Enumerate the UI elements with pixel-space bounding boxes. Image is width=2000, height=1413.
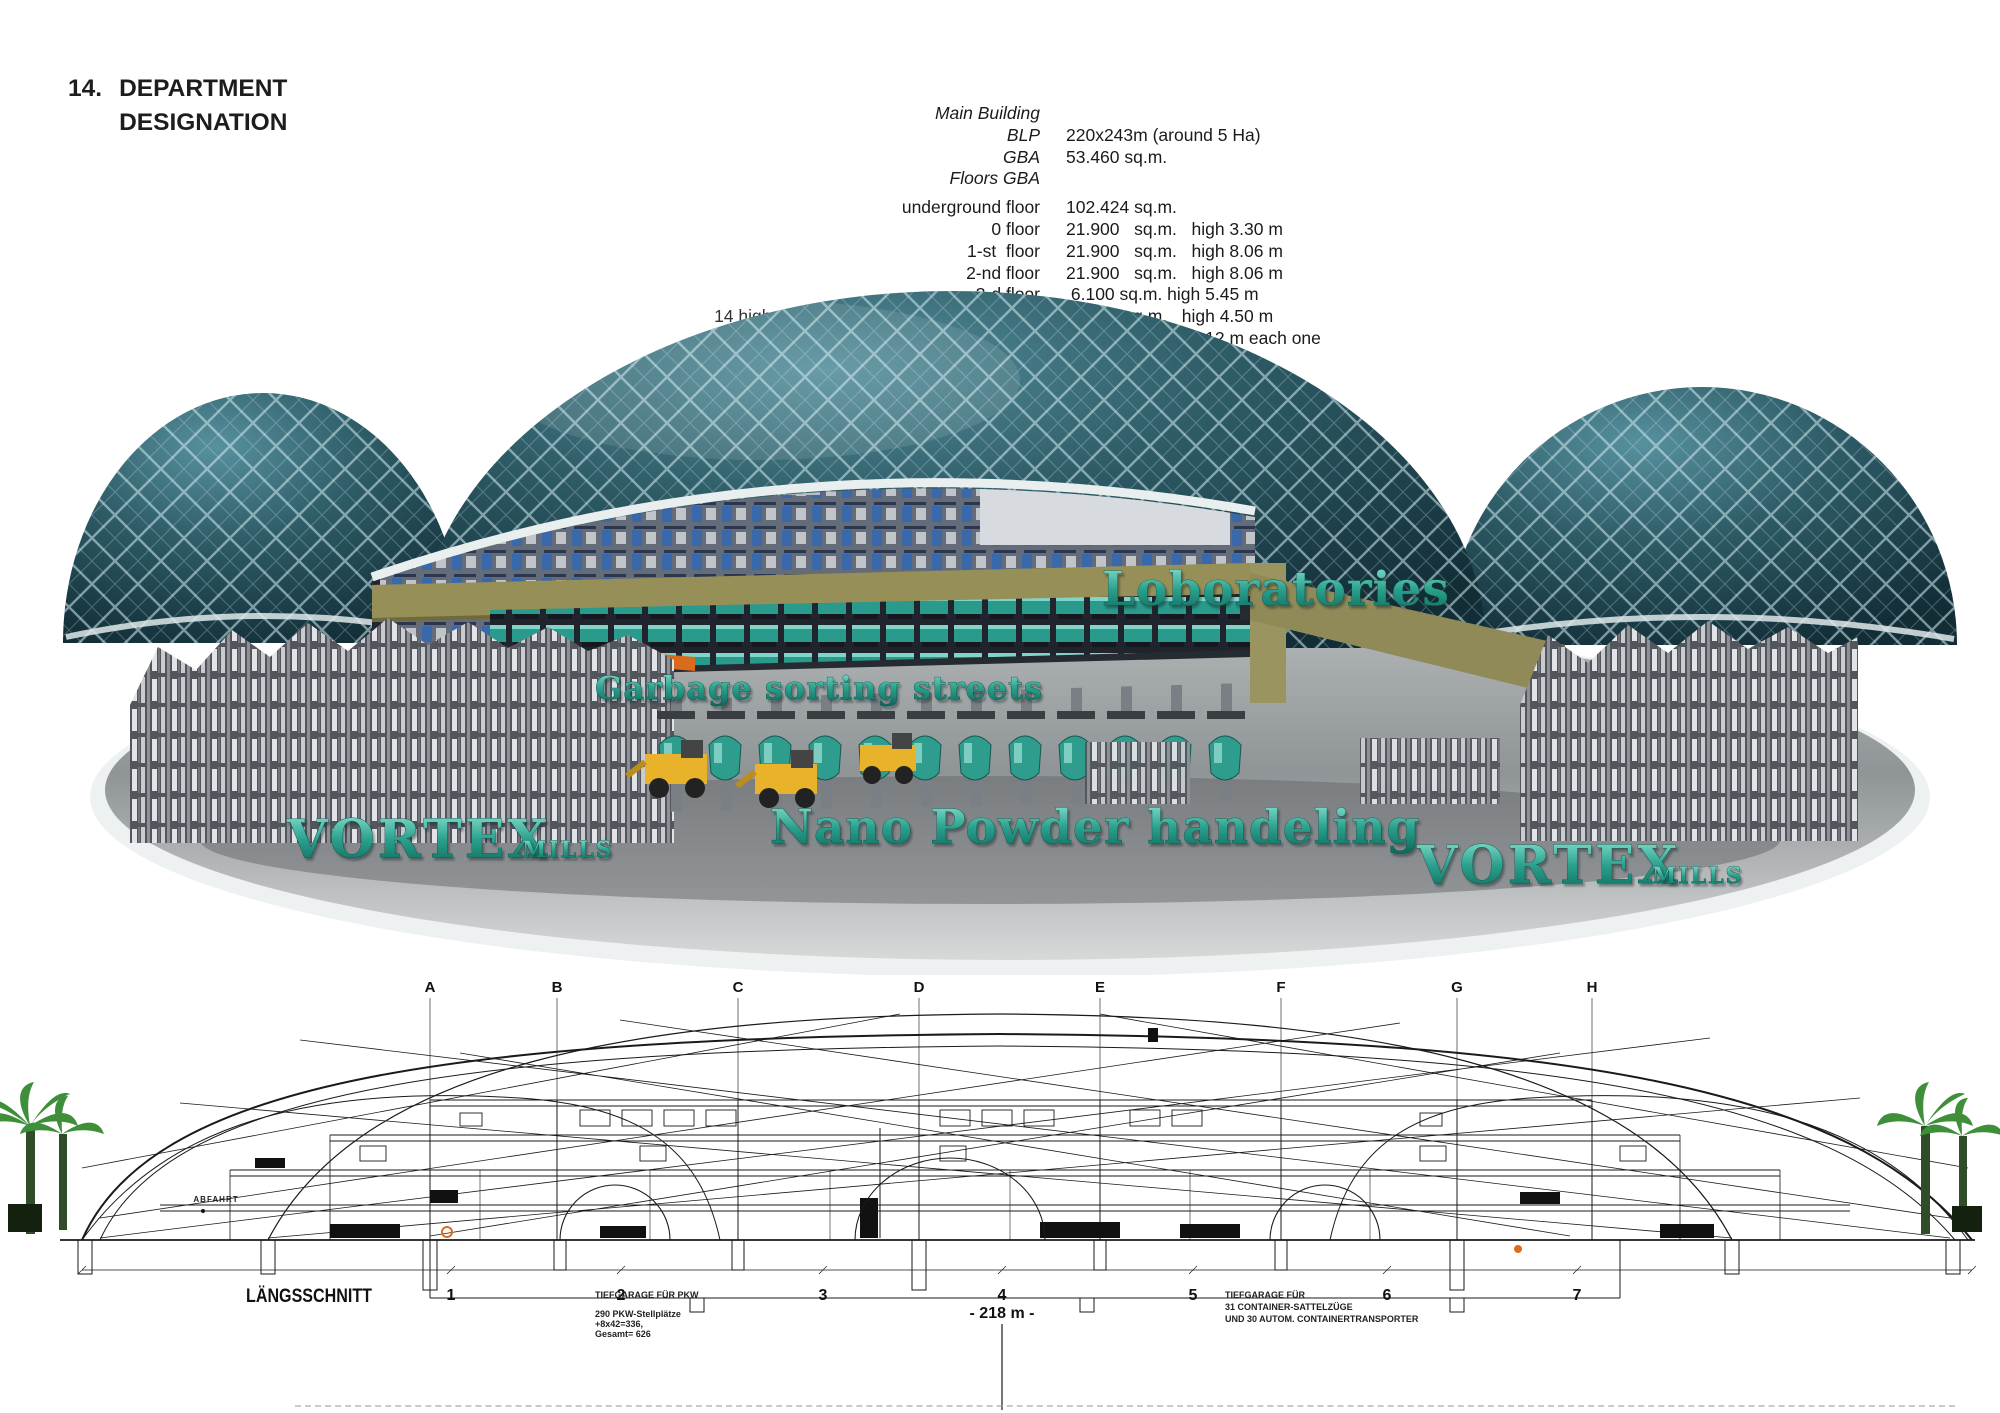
note-line: 31 CONTAINER-SATTELZÜGE	[1225, 1302, 1353, 1312]
page-title: DEPARTMENT DESIGNATION	[119, 72, 287, 140]
grid-number: 3	[819, 1287, 828, 1304]
note-line: TIEFGARAGE FÜR PKW	[595, 1290, 699, 1300]
grid-letter: H	[1587, 979, 1598, 996]
palm-trees-left	[0, 1082, 104, 1234]
grid-number: 1	[447, 1287, 456, 1304]
abfahrt-dot	[201, 1209, 205, 1213]
label-laboratories: Loboratories	[1102, 562, 1450, 617]
note-line: Gesamt= 626	[595, 1329, 651, 1339]
section-title: LÄNGSSCHNITT	[246, 1286, 372, 1307]
abfahrt-label: ABFAHRT	[193, 1195, 238, 1204]
grid-number: 4	[998, 1287, 1007, 1304]
dimension-line	[78, 1266, 1976, 1274]
orange-marker-dot	[1514, 1245, 1522, 1253]
grid-letter: C	[733, 979, 744, 996]
table-row: BLP220x243m (around 5 Ha)	[520, 125, 1500, 147]
table-row: underground floor102.424 sq.m.	[520, 197, 1500, 219]
orange-marker-ring	[442, 1227, 452, 1237]
grid-letter: B	[552, 979, 563, 996]
table-row: 0 floor21.900 sq.m. high 3.30 m	[520, 219, 1500, 241]
page-heading: 14. DEPARTMENT DESIGNATION	[68, 72, 287, 140]
geodesic-dome-right	[1447, 387, 1957, 645]
page-title-line1: DEPARTMENT	[119, 75, 287, 102]
grid-letter: A	[425, 979, 436, 996]
label-nano-powder: Nano Powder handeling	[770, 800, 1420, 855]
table-row: 2-nd floor21.900 sq.m. high 8.06 m	[520, 263, 1500, 285]
label-vortex-right: VORTEX	[1416, 835, 1681, 896]
section-number: 14.	[68, 72, 102, 140]
dome-facility-rendering: Loboratories Garbage sorting streets Nan…	[0, 285, 2000, 975]
note-line: +8x42=336,	[595, 1319, 643, 1329]
floor-slabs	[160, 1100, 1850, 1211]
presentation-page: 14. DEPARTMENT DESIGNATION Main Building…	[0, 0, 2000, 1413]
rooms-and-equipment	[255, 1028, 1714, 1238]
table-row: Floors GBA	[520, 168, 1500, 190]
label-garbage-sorting: Garbage sorting streets	[595, 669, 1043, 707]
vortex-mills-machinery-right	[1520, 621, 1858, 841]
page-edge-dashes	[295, 1405, 1955, 1407]
table-row: GBA53.460 sq.m.	[520, 147, 1500, 169]
palm-trees-right	[1877, 1082, 2000, 1234]
label-vortex-right-mills: MILLS	[1652, 863, 1743, 889]
table-row: 1-st floor21.900 sq.m. high 8.06 m	[520, 241, 1500, 263]
page-title-line2: DESIGNATION	[119, 109, 287, 136]
grid-letter: E	[1095, 979, 1105, 996]
label-vortex-left: VORTEX	[286, 809, 551, 870]
note-line: TIEFGARAGE FÜR	[1225, 1290, 1305, 1300]
grid-letter: F	[1276, 979, 1285, 996]
table-row: Main Building	[520, 103, 1500, 125]
note-parking-left: TIEFGARAGE FÜR PKW 290 PKW-Stellplätze +…	[595, 1290, 699, 1339]
note-line: 290 PKW-Stellplätze	[595, 1309, 681, 1319]
note-line: UND 30 AUTOM. CONTAINERTRANSPORTER	[1225, 1314, 1419, 1324]
grid-number: 6	[1383, 1287, 1392, 1304]
longitudinal-section-drawing: A B C D E F G H	[0, 968, 2000, 1413]
grid-letter: G	[1451, 979, 1463, 996]
label-vortex-left-mills: MILLS	[522, 837, 613, 863]
grid-letter: D	[914, 979, 925, 996]
overall-dimension: - 218 m -	[970, 1305, 1035, 1322]
grid-number: 5	[1189, 1287, 1198, 1304]
grid-letters: A B C D E F G H	[425, 979, 1598, 996]
grid-number: 7	[1573, 1287, 1582, 1304]
